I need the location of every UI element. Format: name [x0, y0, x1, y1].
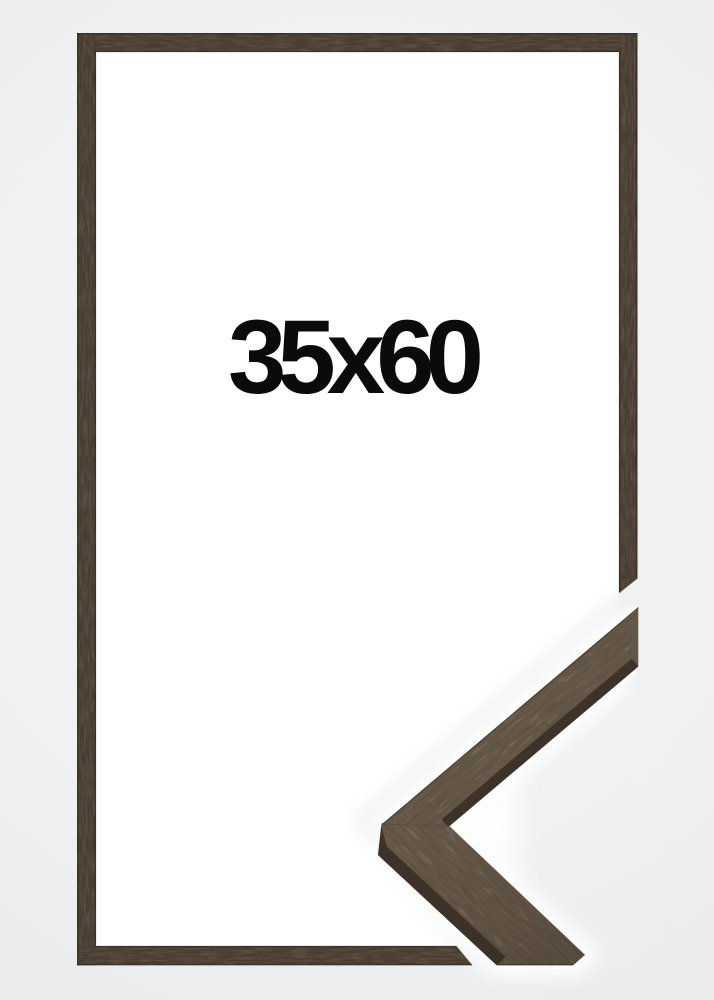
svg-text:35x60: 35x60: [228, 299, 481, 416]
